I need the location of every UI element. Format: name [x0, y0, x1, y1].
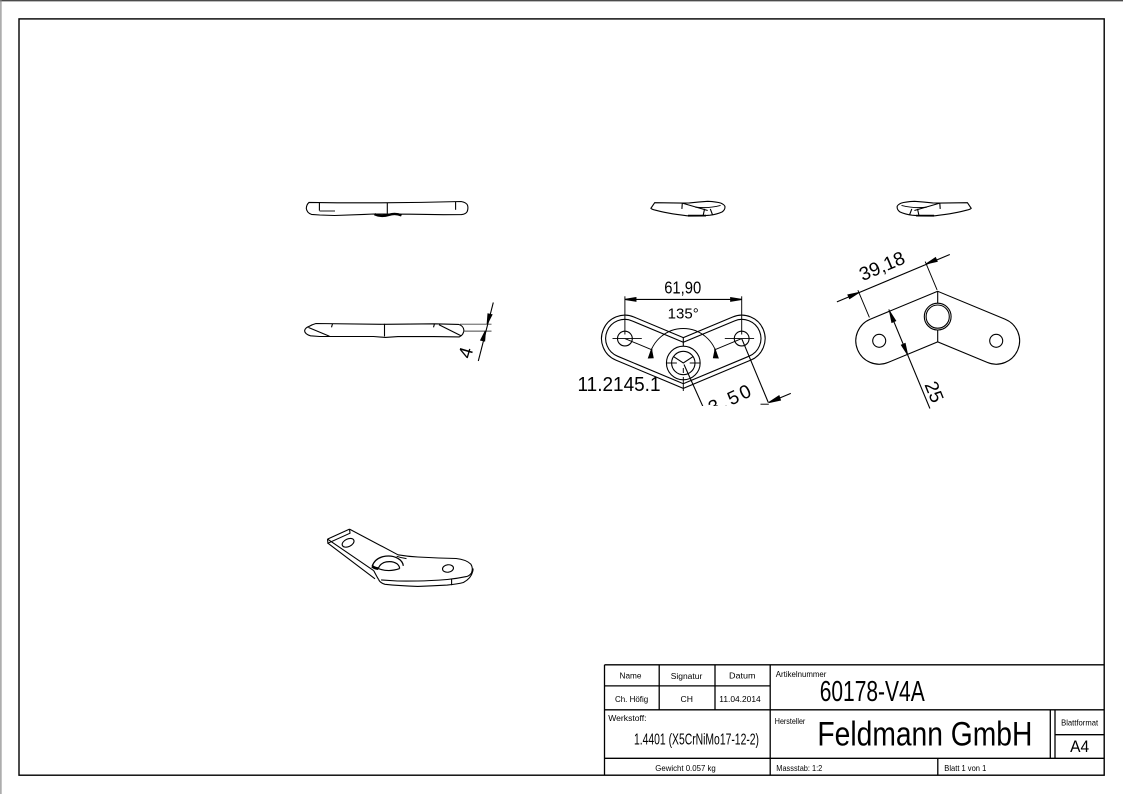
svg-text:Blattformat: Blattformat [1061, 717, 1099, 727]
svg-text:25: 25 [920, 379, 947, 406]
svg-text:Massstab: 1:2: Massstab: 1:2 [776, 763, 822, 773]
svg-text:Blatt 1 von 1: Blatt 1 von 1 [944, 763, 986, 773]
svg-text:61,90: 61,90 [664, 278, 701, 298]
svg-text:Ch. Höfig: Ch. Höfig [615, 694, 648, 704]
svg-text:CH: CH [680, 694, 692, 704]
svg-text:Hersteller: Hersteller [775, 716, 806, 726]
svg-text:Gewicht 0.057 kg: Gewicht 0.057 kg [655, 763, 716, 773]
svg-text:Feldmann GmbH: Feldmann GmbH [817, 715, 1032, 753]
svg-text:Datum: Datum [729, 670, 756, 680]
svg-text:39,18: 39,18 [856, 248, 908, 286]
svg-text:60178-V4A: 60178-V4A [820, 676, 925, 708]
svg-text:Name: Name [620, 670, 642, 680]
svg-text:11.04.2014: 11.04.2014 [719, 694, 761, 704]
svg-text:Werkstoff:: Werkstoff: [608, 713, 646, 723]
svg-text:4: 4 [455, 345, 478, 361]
svg-text:135°: 135° [668, 306, 699, 323]
svg-text:11.2145.1: 11.2145.1 [578, 373, 661, 396]
svg-text:Signatur: Signatur [671, 671, 703, 681]
svg-text:3,50: 3,50 [705, 380, 757, 419]
svg-text:1.4401 (X5CrNiMo17-12-2): 1.4401 (X5CrNiMo17-12-2) [634, 731, 759, 748]
svg-text:A4: A4 [1070, 737, 1089, 756]
